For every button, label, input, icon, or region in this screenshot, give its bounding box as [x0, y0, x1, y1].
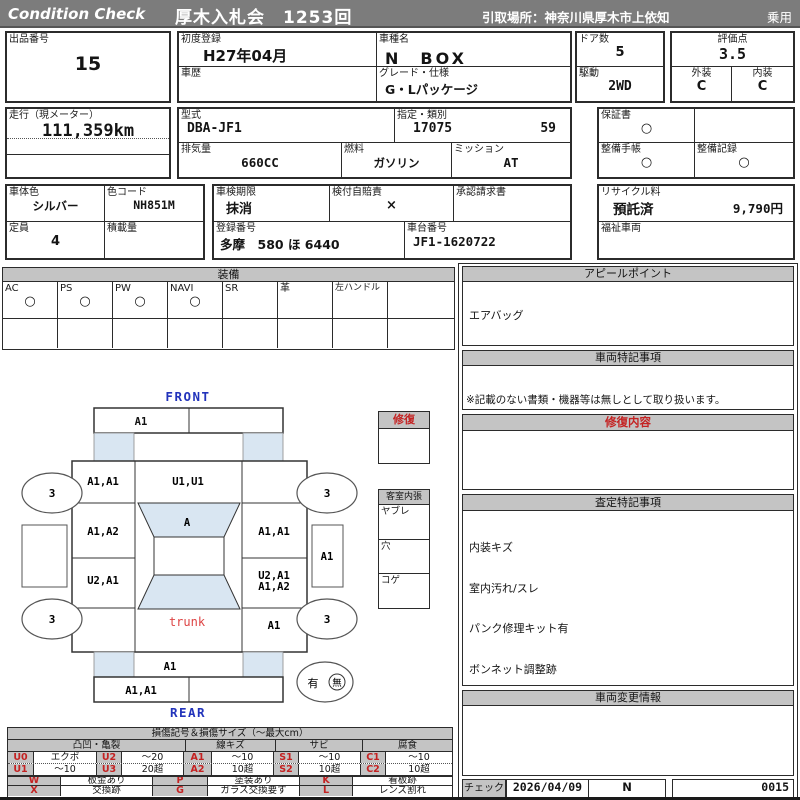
- auction-sheet: Condition Check 厚木入札会 1253回 引取場所：神奈川県厚木市…: [0, 0, 800, 800]
- fender-front-left-code: A1,A1: [87, 476, 119, 488]
- recycle-fee: 9,790円: [733, 198, 783, 218]
- load-cell: 積載量: [105, 222, 203, 258]
- equip-label-ac: AC: [3, 282, 57, 294]
- grade-cell: グレード・仕様 G・Lパッケージ: [377, 67, 570, 101]
- service-book-mark: ○: [599, 155, 694, 170]
- registration-box: 車検期限 抹消 検付自賠責 × 承認請求書 登録番号 多摩 580 ほ 6440…: [212, 184, 572, 260]
- row: AC ○ PS ○ PW ○ NAVI ○ SR 革: [3, 282, 454, 318]
- appeal-box: アピールポイント エアバッグ ABS、ETC プッシュスタート 左側パワースライ…: [462, 266, 794, 346]
- repair-flag-title: 修復: [379, 412, 429, 429]
- legend-mark-code: X: [8, 786, 61, 796]
- welfare-label: 福祉車両: [599, 222, 793, 234]
- roof: [154, 537, 224, 575]
- rear-label: REAR: [170, 705, 206, 720]
- equip-empty-cell: [113, 319, 168, 348]
- chassis-cell: 車台番号 JF1-1620722: [405, 222, 570, 258]
- legend-row-1: U0 エクボ U2 ～20 A1 ～10 S1 ～10 C1 ～10: [8, 752, 452, 763]
- class-cell: 指定・類別 17075 59: [395, 109, 570, 143]
- legend-mark-desc: 塗装あり: [208, 777, 300, 785]
- color-code-label: 色コード: [105, 186, 203, 198]
- equip-empty-cell: [168, 319, 223, 348]
- history-cell: 車歴: [179, 67, 377, 101]
- trunk-label: trunk: [169, 615, 206, 629]
- color-code-cell: 色コード NH851M: [105, 186, 203, 222]
- appeal-line: エアバッグ: [469, 309, 787, 322]
- capacity-cell: 定員 4: [7, 222, 105, 258]
- legend-group-corrosion: 腐食: [363, 740, 452, 752]
- displacement-cell: 排気量 660CC: [179, 143, 342, 177]
- equip-col-ps: PS ○: [58, 282, 113, 318]
- legend-size: ～20: [122, 752, 184, 763]
- legend-size: ～10: [34, 764, 97, 775]
- cabin-row-tear: ヤブレ: [379, 505, 429, 539]
- row: 型式 DBA-JF1 指定・類別 17075 59: [179, 109, 570, 143]
- legend-mark-desc: 板金あり: [61, 777, 153, 785]
- cabin-lining-box: 客室内張 ヤブレ 穴 コゲ: [378, 489, 430, 609]
- drive-cell: 駆動 2WD: [577, 67, 663, 101]
- legend-marks-row-2: X 交換跡 G ガラス交換要す L レンズ割れ: [8, 785, 452, 796]
- equip-col-pw: PW ○: [113, 282, 168, 318]
- legend-code: U0: [8, 752, 34, 763]
- equip-label-sr: SR: [223, 282, 277, 294]
- legend-group-row: 凸凹・亀裂 線キズ サビ 腐食: [8, 740, 452, 752]
- equip-empty-cell: [333, 319, 388, 348]
- doors-drive-box: ドア数 5 駆動 2WD: [575, 31, 665, 103]
- service-record-mark: ○: [695, 155, 793, 170]
- change-info-title: 車両変更情報: [463, 691, 793, 706]
- equip-empty-cell: [58, 319, 113, 348]
- equip-empty-cell: [388, 319, 454, 348]
- recycle-label: リサイクル料: [599, 186, 793, 198]
- doors-label: ドア数: [577, 33, 663, 45]
- door-front-right-code: A1,A1: [258, 526, 290, 538]
- doors-cell: ドア数 5: [577, 33, 663, 67]
- check-label: チェック: [462, 779, 506, 798]
- mileage-box: 走行（現メーター） 111,359km: [5, 107, 171, 179]
- side-right-code: A1: [321, 551, 334, 563]
- capacity-label: 定員: [7, 222, 104, 234]
- legend-marks-row-1: W 板金あり P 塗装あり K 看板跡: [8, 775, 452, 785]
- special-notes-text: ※記載のない書類・機器等は無しとして取り扱います。: [466, 392, 725, 407]
- vehicle-category: 乗用: [767, 7, 792, 26]
- repair-detail-box: 修復内容: [462, 414, 794, 490]
- rear-window: [138, 575, 240, 609]
- rear-panel-code: A1: [164, 661, 177, 673]
- door-rear-right-code-2: A1,A2: [258, 581, 290, 593]
- check-code: N: [589, 780, 665, 797]
- change-info-box: 車両変更情報: [462, 690, 794, 776]
- class-value-1: 17075: [413, 121, 452, 136]
- warranty-label: 保証書: [599, 109, 694, 121]
- row: 車歴 グレード・仕様 G・Lパッケージ: [179, 67, 570, 101]
- legend-title: 損傷記号＆損傷サイズ（～最大cm）: [8, 728, 452, 740]
- inspection-label: 車検期限: [214, 186, 329, 198]
- special-notes-box: 車両特記事項 ※記載のない書類・機器等は無しとして取り扱います。: [462, 350, 794, 410]
- legend-size: 10超: [212, 764, 274, 775]
- row: 車体色 シルバー 色コード NH851M: [7, 186, 203, 222]
- cabin-hole-label: 穴: [379, 540, 429, 552]
- legend-group-rust: サビ: [276, 740, 363, 752]
- reg-no-cell: 登録番号 多摩 580 ほ 6440: [214, 222, 405, 258]
- cabin-row-burn: コゲ: [379, 573, 429, 607]
- door-rear-left-code: U2,A1: [87, 575, 119, 587]
- equipment-title: 装備: [3, 268, 454, 282]
- legend-mark-desc: ガラス交換要す: [208, 786, 300, 796]
- front-bumper-left-code: A1: [135, 416, 148, 428]
- front-label: FRONT: [165, 389, 210, 404]
- equip-label-lhd: 左ハンドル: [333, 282, 387, 294]
- assessment-title: 査定特記事項: [463, 495, 793, 511]
- legend-mark-desc: 看板跡: [353, 777, 452, 785]
- assessment-line: ボンネット調整跡: [469, 663, 787, 677]
- welfare-cell: 福祉車両: [599, 222, 793, 258]
- exterior-cell: 外装 C: [672, 67, 732, 101]
- legend-size: 10超: [299, 764, 361, 775]
- divider: [7, 154, 169, 155]
- legend-size: ～10: [299, 752, 361, 763]
- first-reg-cell: 初度登録 H27年04月: [179, 33, 377, 67]
- model-name-cell: 車種名 N BOX: [377, 33, 570, 67]
- spare-no-label: 無: [332, 677, 342, 689]
- auction-title: 厚木入札会 1253回: [175, 3, 352, 28]
- warranty-cell: 保証書 ○: [599, 109, 695, 143]
- fuel-cell: 燃料 ガソリン: [342, 143, 452, 177]
- lot-box: 出品番号 15: [5, 31, 171, 103]
- header-bar: Condition Check 厚木入札会 1253回 引取場所：神奈川県厚木市…: [0, 0, 800, 28]
- appeal-title: アピールポイント: [463, 267, 793, 282]
- legend-mark-code: P: [153, 777, 208, 785]
- recycle-box: リサイクル料 預託済 9,790円 福祉車両: [597, 184, 795, 260]
- body-color-cell: 車体色 シルバー: [7, 186, 105, 222]
- assessment-line: 室内汚れ/スレ: [469, 582, 787, 596]
- displacement-label: 排気量: [179, 143, 341, 155]
- repair-detail-title: 修復内容: [463, 415, 793, 431]
- row: 初度登録 H27年04月 車種名 N BOX: [179, 33, 570, 67]
- legend-code: U3: [97, 764, 122, 775]
- equip-col-lhd: 左ハンドル: [333, 282, 388, 318]
- quarter-rear-right-code: A1: [268, 620, 281, 632]
- legend-mark-desc: 交換跡: [61, 786, 153, 796]
- legend-mark-code: G: [153, 786, 208, 796]
- legend-mark-code: W: [8, 777, 61, 785]
- cabin-burn-label: コゲ: [379, 574, 429, 586]
- legend-code: C2: [361, 764, 386, 775]
- headlight-right: [243, 433, 283, 461]
- legend-size: ～10: [386, 752, 452, 763]
- legend-size: 10超: [386, 764, 452, 775]
- model-code-label: 型式: [179, 109, 394, 121]
- equip-col-leather: 革: [278, 282, 333, 318]
- interior-cell: 内装 C: [732, 67, 793, 101]
- first-reg-value: H27年04月: [179, 45, 376, 66]
- side-panel-left: [22, 525, 67, 587]
- equip-mark-ac: ○: [3, 294, 57, 309]
- color-code-value: NH851M: [105, 198, 203, 212]
- approval-label: 承認請求書: [454, 186, 570, 198]
- reg-no-value: 多摩 580 ほ 6440: [214, 234, 404, 253]
- insurance-cell: 検付自賠責 ×: [330, 186, 454, 222]
- legend-code: A2: [184, 764, 212, 775]
- headlight-left: [94, 433, 134, 461]
- equip-col-navi: NAVI ○: [168, 282, 223, 318]
- legend-size: ～10: [212, 752, 274, 763]
- grade-value: G・Lパッケージ: [377, 79, 570, 98]
- legend-size: エクボ: [34, 752, 97, 763]
- legend-row-2: U1 ～10 U3 20超 A2 10超 S2 10超 C2 10超: [8, 763, 452, 775]
- equip-empty-cell: [223, 319, 278, 348]
- legend-group-scratch: 線キズ: [186, 740, 276, 752]
- check-date-box: 2026/04/09 N: [506, 779, 666, 798]
- insurance-mark: ×: [330, 198, 453, 213]
- load-label: 積載量: [105, 222, 203, 234]
- wheel-front-left-code: 3: [49, 487, 56, 500]
- insurance-label: 検付自賠責: [330, 186, 453, 198]
- model-name-label: 車種名: [377, 33, 570, 45]
- inspection-value: 抹消: [214, 198, 329, 217]
- approval-cell: 承認請求書: [454, 186, 570, 222]
- equip-mark-ps: ○: [58, 294, 112, 309]
- body-color-value: シルバー: [7, 198, 104, 214]
- recycle-cell: リサイクル料 預託済 9,790円: [599, 186, 793, 222]
- equip-col-filler: [388, 282, 454, 318]
- score-label: 評価点: [672, 33, 793, 45]
- fuel-label: 燃料: [342, 143, 451, 155]
- legend-mark-code: K: [300, 777, 353, 785]
- body-color-label: 車体色: [7, 186, 104, 198]
- divider: [7, 138, 169, 139]
- equip-label-ps: PS: [58, 282, 112, 294]
- wheel-front-right-code: 3: [324, 487, 331, 500]
- check-date: 2026/04/09: [507, 780, 589, 797]
- wheel-rear-left-code: 3: [49, 613, 56, 626]
- interior-grade: C: [732, 79, 793, 94]
- chassis-value: JF1-1620722: [405, 234, 570, 249]
- color-box: 車体色 シルバー 色コード NH851M 定員 4 積載量: [5, 184, 205, 260]
- history-label: 車歴: [179, 67, 376, 79]
- inspection-cell: 車検期限 抹消: [214, 186, 330, 222]
- recycle-status: 預託済: [613, 198, 654, 218]
- service-record-cell: 整備記録 ○: [695, 143, 793, 177]
- equip-label-navi: NAVI: [168, 282, 222, 294]
- assessment-line: 内装キズ: [469, 541, 787, 555]
- windshield-code: A: [184, 517, 191, 529]
- service-book-cell: 整備手帳 ○: [599, 143, 695, 177]
- assessment-line: パンク修理キット有: [469, 622, 787, 636]
- model-code-cell: 型式 DBA-JF1: [179, 109, 395, 143]
- doors-value: 5: [577, 45, 663, 60]
- empty-cell: [695, 109, 793, 143]
- legend-size: 20超: [122, 764, 184, 775]
- displacement-value: 660CC: [179, 155, 341, 170]
- legend-mark-code: L: [300, 786, 353, 796]
- damage-legend-table: 損傷記号＆損傷サイズ（～最大cm） 凸凹・亀裂 線キズ サビ 腐食 U0 エクボ…: [7, 727, 453, 798]
- service-book-label: 整備手帳: [599, 143, 694, 155]
- equip-col-ac: AC ○: [3, 282, 58, 318]
- door-front-left-code: A1,A2: [87, 526, 119, 538]
- fuel-value: ガソリン: [342, 155, 451, 171]
- legend-mark-desc: レンズ割れ: [353, 786, 452, 796]
- repair-flag-box: 修復: [378, 411, 430, 464]
- wheel-rear-right-code: 3: [324, 613, 331, 626]
- drive-value: 2WD: [577, 79, 663, 94]
- mileage-label: 走行（現メーター）: [7, 109, 169, 121]
- class-value-2: 59: [540, 121, 556, 136]
- equip-label-leather: 革: [278, 282, 332, 294]
- equipment-table: 装備 AC ○ PS ○ PW ○ NAVI ○ SR 革: [2, 267, 455, 350]
- chassis-label: 車台番号: [405, 222, 570, 234]
- pickup-location: 引取場所：神奈川県厚木市上依知: [482, 7, 670, 26]
- row: 車検期限 抹消 検付自賠責 × 承認請求書: [214, 186, 570, 222]
- score-cell: 評価点 3.5: [672, 33, 793, 67]
- check-number-box: 0015: [672, 779, 794, 798]
- main-info-box: 初度登録 H27年04月 車種名 N BOX 車歴 グレード・仕様 G・Lパッケ…: [177, 31, 572, 103]
- legend-code: S1: [274, 752, 299, 763]
- row: 定員 4 積載量: [7, 222, 203, 258]
- warranty-mark: ○: [599, 121, 694, 136]
- row: 登録番号 多摩 580 ほ 6440 車台番号 JF1-1620722: [214, 222, 570, 258]
- spare-yes-label: 有: [308, 676, 319, 690]
- equip-label-pw: PW: [113, 282, 167, 294]
- transmission-label: ミッション: [452, 143, 570, 155]
- exterior-label: 外装: [672, 67, 731, 79]
- legend-code: U1: [8, 764, 34, 775]
- row: 保証書 ○: [599, 109, 793, 143]
- taillight-right: [243, 652, 283, 677]
- check-number: 0015: [673, 780, 793, 795]
- transmission-cell: ミッション AT: [452, 143, 570, 177]
- legend-group-dents: 凸凹・亀裂: [8, 740, 186, 752]
- reg-no-label: 登録番号: [214, 222, 404, 234]
- rear-bumper-left-code: A1,A1: [125, 685, 157, 697]
- equip-mark-pw: ○: [113, 294, 167, 309]
- equip-mark-navi: ○: [168, 294, 222, 309]
- row: 外装 C 内装 C: [672, 67, 793, 101]
- transmission-value: AT: [452, 155, 570, 170]
- engine-box: 型式 DBA-JF1 指定・類別 17075 59 排気量 660CC 燃料 ガ…: [177, 107, 572, 179]
- class-label: 指定・類別: [395, 109, 570, 121]
- legend-code: A1: [184, 752, 212, 763]
- capacity-value: 4: [7, 234, 104, 249]
- first-reg-label: 初度登録: [179, 33, 376, 45]
- row: 整備手帳 ○ 整備記録 ○: [599, 143, 793, 177]
- equip-col-sr: SR: [223, 282, 278, 318]
- legend-code: C1: [361, 752, 386, 763]
- cabin-tear-label: ヤブレ: [379, 505, 429, 517]
- lot-number: 15: [7, 53, 169, 75]
- documents-box: 保証書 ○ 整備手帳 ○ 整備記録 ○: [597, 107, 795, 179]
- interior-label: 内装: [732, 67, 793, 79]
- row: 排気量 660CC 燃料 ガソリン ミッション AT: [179, 143, 570, 177]
- exterior-grade: C: [672, 79, 731, 94]
- drive-label: 駆動: [577, 67, 663, 79]
- special-notes-title: 車両特記事項: [463, 351, 793, 366]
- legend-code: U2: [97, 752, 122, 763]
- model-name-value: N BOX: [377, 45, 570, 67]
- score-box: 評価点 3.5 外装 C 内装 C: [670, 31, 795, 103]
- model-code-value: DBA-JF1: [179, 121, 394, 136]
- cabin-row-hole: 穴: [379, 539, 429, 573]
- taillight-left: [94, 652, 134, 677]
- damage-diagram: FRONT A1 A1,A1 U1,U1 A1,A2 A A1,A1 U2,A1…: [0, 385, 370, 725]
- brand-title: Condition Check: [8, 5, 145, 23]
- row: [3, 318, 454, 348]
- equip-empty-cell: [278, 319, 333, 348]
- cabin-lining-title: 客室内張: [379, 490, 429, 505]
- service-record-label: 整備記録: [695, 143, 793, 155]
- score-value: 3.5: [672, 45, 793, 63]
- equip-empty-cell: [3, 319, 58, 348]
- assessment-box: 査定特記事項 内装キズ 室内汚れ/スレ パンク修理キット有 ボンネット調整跡 ド…: [462, 494, 794, 686]
- lot-label: 出品番号: [7, 33, 169, 45]
- grade-label: グレード・仕様: [377, 67, 570, 79]
- legend-code: S2: [274, 764, 299, 775]
- hood-code: U1,U1: [172, 476, 204, 488]
